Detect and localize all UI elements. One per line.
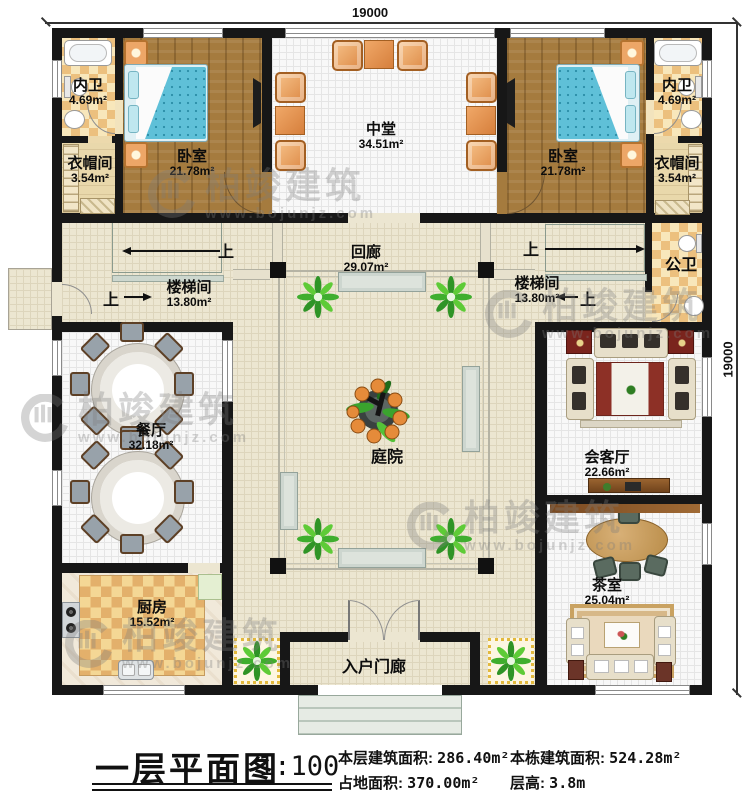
room-label-bath-right: 内卫4.69m² <box>658 78 696 106</box>
bench <box>280 472 298 530</box>
dining-chair-icon <box>120 322 144 342</box>
door-opening <box>654 136 678 143</box>
tv-icon <box>507 78 515 128</box>
room-label-dining: 餐厅32.18m² <box>129 423 174 451</box>
room-label-bedroom-left: 卧室21.78m² <box>170 149 215 177</box>
window <box>510 28 605 38</box>
door-opening <box>646 100 654 134</box>
chair-icon <box>275 140 306 171</box>
table-icon <box>275 106 305 135</box>
stairs-up-label: 上 <box>523 236 539 260</box>
nightstand-icon <box>124 40 148 66</box>
toilet-icon <box>696 234 702 253</box>
dimension-top-label: 19000 <box>348 5 392 20</box>
door-opening <box>188 563 220 573</box>
dining-chair-icon <box>70 480 90 504</box>
chair-icon <box>466 72 497 103</box>
room-label-public-bath: 公卫 <box>665 258 697 275</box>
window <box>702 523 712 565</box>
door-opening <box>262 172 272 214</box>
courtyard-tree-icon <box>340 374 412 446</box>
stairs-up-arrow <box>124 296 144 298</box>
bed-icon <box>556 64 640 142</box>
stair-rail <box>545 274 647 281</box>
end-table-icon <box>668 330 694 354</box>
stairs-up-label: 上 <box>103 286 119 310</box>
plant-icon <box>297 276 339 318</box>
room-label-reception: 会客厅22.66m² <box>584 450 629 478</box>
bench <box>338 548 426 568</box>
mat-icon <box>655 200 690 215</box>
sofa-icon <box>586 654 654 680</box>
end-table-icon <box>568 660 584 680</box>
stat-floor-height: 层高: 3.8m <box>510 772 585 793</box>
door-opening <box>348 213 420 223</box>
chair-icon <box>332 40 363 71</box>
plant-icon <box>430 518 472 560</box>
dimension-right-label: 19000 <box>721 337 736 381</box>
wall-segment <box>280 685 318 695</box>
column <box>478 262 494 278</box>
room-label-bedroom-right: 卧室21.78m² <box>541 149 586 177</box>
plan-scale: 1:100 <box>258 751 339 782</box>
dimension-line-top <box>45 22 738 24</box>
window <box>52 470 62 506</box>
room-label-tea-room: 茶室25.04m² <box>585 578 630 606</box>
chair-icon <box>397 40 428 71</box>
tv-icon <box>253 78 261 128</box>
rug-edge <box>580 420 682 428</box>
door-opening <box>645 292 652 322</box>
dining-chair-icon <box>120 534 144 554</box>
room-label-corridor: 回廊29.07m² <box>344 245 389 273</box>
window <box>222 340 233 402</box>
bench <box>338 272 426 292</box>
desk-icon <box>588 478 670 493</box>
nightstand-icon <box>620 40 644 66</box>
wall-segment <box>442 685 480 695</box>
stove-icon <box>62 602 80 638</box>
stairs-up-label: 上 <box>580 286 596 310</box>
stairs-up-label: 上 <box>218 238 234 262</box>
sink-icon <box>64 110 85 129</box>
column <box>478 558 494 574</box>
dimension-line-right <box>736 22 738 695</box>
nightstand-icon <box>620 142 644 168</box>
window <box>52 60 62 98</box>
plant-icon <box>237 641 277 681</box>
floorplan-canvas: 内卫4.69m² 衣帽间3.54m² 卧室21.78m² 中堂34.51m² 卧… <box>0 0 750 805</box>
window <box>52 340 62 376</box>
window <box>285 28 495 38</box>
toilet-icon <box>695 76 702 98</box>
tea-room-counter <box>550 504 700 513</box>
stairs-up-arrow <box>128 250 220 252</box>
porch-steps <box>298 695 462 735</box>
door-opening <box>497 172 507 214</box>
plant-icon <box>491 641 531 681</box>
window <box>103 685 185 695</box>
wall-segment <box>547 495 702 504</box>
chair-icon <box>275 72 306 103</box>
dining-chair-icon <box>70 372 90 396</box>
room-label-courtyard: 庭院 <box>371 450 403 467</box>
door-opening <box>88 136 112 143</box>
room-label-cloak-right: 衣帽间3.54m² <box>654 156 699 184</box>
room-label-kitchen: 厨房15.52m² <box>130 600 175 628</box>
path-connector <box>233 269 270 280</box>
arrowhead-icon <box>143 293 156 301</box>
sofa-icon <box>654 616 676 666</box>
bathtub-icon <box>64 40 112 66</box>
title-underline <box>92 783 332 785</box>
table-icon <box>466 106 496 135</box>
stairs-up-arrow <box>545 248 637 250</box>
sofa-icon <box>566 358 594 420</box>
wall-segment <box>535 322 547 690</box>
rug-icon <box>596 362 664 416</box>
door-opening <box>52 282 62 316</box>
room-label-stair-left: 楼梯间13.80m² <box>166 280 211 308</box>
counter-icon <box>198 574 222 600</box>
room-label-cloak-left: 衣帽间3.54m² <box>67 156 112 184</box>
column <box>270 558 286 574</box>
stat-land-area: 占地面积: 370.00m² <box>338 772 479 793</box>
room-label-entry-porch: 入户门廊 <box>342 660 406 677</box>
end-table-icon <box>656 662 672 682</box>
wall-segment <box>290 632 348 642</box>
path-connector <box>480 223 491 264</box>
bench <box>462 366 480 452</box>
door-opening <box>115 100 123 134</box>
arrowhead-icon <box>636 245 649 253</box>
sink-icon <box>681 110 702 129</box>
bed-icon <box>124 64 208 142</box>
window <box>595 685 690 695</box>
room-label-stair-right: 楼梯间13.80m² <box>514 276 559 304</box>
wall-segment <box>62 322 233 332</box>
arrowhead-icon <box>118 247 131 255</box>
sink-icon <box>684 296 704 316</box>
plant-icon <box>430 276 472 318</box>
table-icon <box>364 40 394 69</box>
stat-floor-area: 本层建筑面积: 286.40m² <box>338 747 509 768</box>
sofa-icon <box>594 328 668 358</box>
mat-icon <box>80 198 115 214</box>
side-porch-floor <box>8 268 52 330</box>
end-table-icon <box>566 330 592 354</box>
toilet-icon <box>678 235 696 252</box>
window <box>702 357 712 417</box>
window <box>143 28 223 38</box>
path-connector <box>272 223 283 264</box>
title-underline <box>92 789 332 791</box>
room-label-bath-left: 内卫4.69m² <box>69 78 107 106</box>
chair-icon <box>466 140 497 171</box>
window <box>702 60 712 98</box>
stat-total-area: 本栋建筑面积: 524.28m² <box>510 747 681 768</box>
plant-icon <box>297 518 339 560</box>
dining-chair-icon <box>174 480 194 504</box>
sofa-icon <box>668 358 696 420</box>
bathtub-icon <box>654 40 702 66</box>
wall-segment <box>420 632 470 642</box>
dining-chair-icon <box>174 372 194 396</box>
nightstand-icon <box>124 142 148 168</box>
kitchen-sink-icon <box>118 660 154 680</box>
room-label-hall: 中堂34.51m² <box>359 122 404 150</box>
column <box>270 262 286 278</box>
